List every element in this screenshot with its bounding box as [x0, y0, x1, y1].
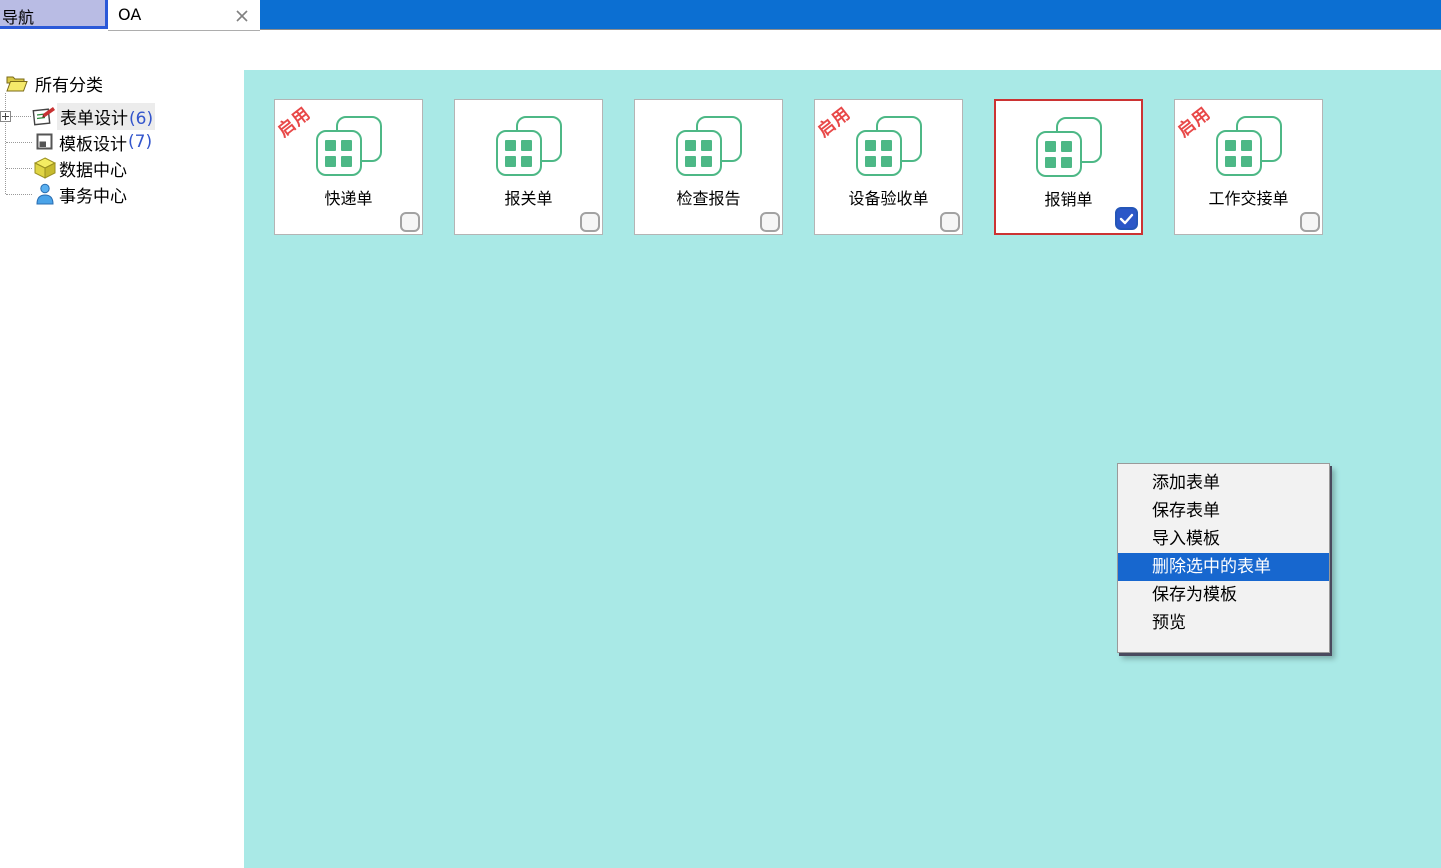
form-card[interactable]: 检查报告 — [634, 99, 783, 235]
template-design-icon — [32, 132, 58, 152]
tree-stub — [6, 194, 32, 195]
tree-item-count: (6) — [129, 109, 153, 129]
expand-plus-icon[interactable] — [0, 111, 11, 122]
tree-stub — [11, 116, 31, 117]
card-checkbox[interactable] — [760, 212, 780, 232]
form-stack-icon — [496, 116, 562, 176]
card-checkbox[interactable] — [580, 212, 600, 232]
tree-root-label: 所有分类 — [34, 71, 104, 96]
tree-item-template-design[interactable]: 模板设计(7) — [0, 130, 152, 154]
card-label: 检查报告 — [635, 185, 782, 209]
menu-item-save-as-template[interactable]: 保存为模板 — [1118, 581, 1329, 609]
enabled-stamp: 启用 — [271, 100, 315, 142]
card-checkbox-checked[interactable] — [1115, 207, 1138, 230]
form-card[interactable]: 启用 工作交接单 — [1174, 99, 1323, 235]
tree-item-transaction-center[interactable]: 事务中心 — [0, 182, 128, 206]
menu-item-preview[interactable]: 预览 — [1118, 609, 1329, 637]
sidebar-tree: 所有分类 表单设计(6) 模板设计(7) — [0, 31, 244, 868]
tree-root-all-categories[interactable]: 所有分类 — [4, 71, 104, 95]
tab-oa-label: OA — [118, 5, 141, 24]
form-card[interactable]: 报关单 — [454, 99, 603, 235]
menu-item-save-form[interactable]: 保存表单 — [1118, 497, 1329, 525]
form-stack-icon — [1036, 117, 1102, 177]
enabled-stamp: 启用 — [811, 100, 855, 142]
card-label: 设备验收单 — [815, 185, 962, 209]
card-label: 报关单 — [455, 185, 602, 209]
tab-bar-fill — [260, 0, 1441, 30]
tree-item-data-center[interactable]: 数据中心 — [0, 156, 128, 180]
tree-item-label: 模板设计 — [58, 130, 128, 155]
tree-item-label: 事务中心 — [58, 182, 128, 207]
card-checkbox[interactable] — [940, 212, 960, 232]
tree-stub — [6, 168, 32, 169]
tab-oa[interactable]: OA — [108, 0, 260, 31]
form-card[interactable]: 报销单 — [994, 99, 1143, 235]
tree-stub — [6, 142, 32, 143]
form-stack-icon — [856, 116, 922, 176]
menu-item-delete-selected-forms[interactable]: 删除选中的表单 — [1118, 553, 1329, 581]
close-icon[interactable] — [234, 8, 250, 24]
form-card[interactable]: 启用 快递单 — [274, 99, 423, 235]
card-label: 快递单 — [275, 185, 422, 209]
form-card[interactable]: 启用 设备验收单 — [814, 99, 963, 235]
form-stack-icon — [316, 116, 382, 176]
data-cube-icon — [32, 157, 58, 179]
tab-bar: 导航 OA — [0, 0, 1441, 31]
enabled-stamp: 启用 — [1171, 100, 1215, 142]
card-label: 工作交接单 — [1175, 185, 1322, 209]
tree-item-count: (7) — [128, 132, 152, 152]
tree-item-form-design[interactable]: 表单设计(6) — [0, 104, 155, 128]
folder-icon — [4, 74, 30, 92]
person-icon — [32, 183, 58, 205]
menu-item-import-template[interactable]: 导入模板 — [1118, 525, 1329, 553]
tree-item-label: 表单设计 — [59, 109, 129, 129]
checkmark-icon — [1119, 213, 1134, 225]
card-checkbox[interactable] — [1300, 212, 1320, 232]
form-design-icon — [31, 105, 57, 127]
context-menu: 添加表单 保存表单 导入模板 删除选中的表单 保存为模板 预览 — [1117, 463, 1330, 653]
tree-item-label: 数据中心 — [58, 156, 128, 181]
menu-item-add-form[interactable]: 添加表单 — [1118, 469, 1329, 497]
card-checkbox[interactable] — [400, 212, 420, 232]
tab-navigation[interactable]: 导航 — [0, 0, 105, 29]
form-stack-icon — [1216, 116, 1282, 176]
form-stack-icon — [676, 116, 742, 176]
